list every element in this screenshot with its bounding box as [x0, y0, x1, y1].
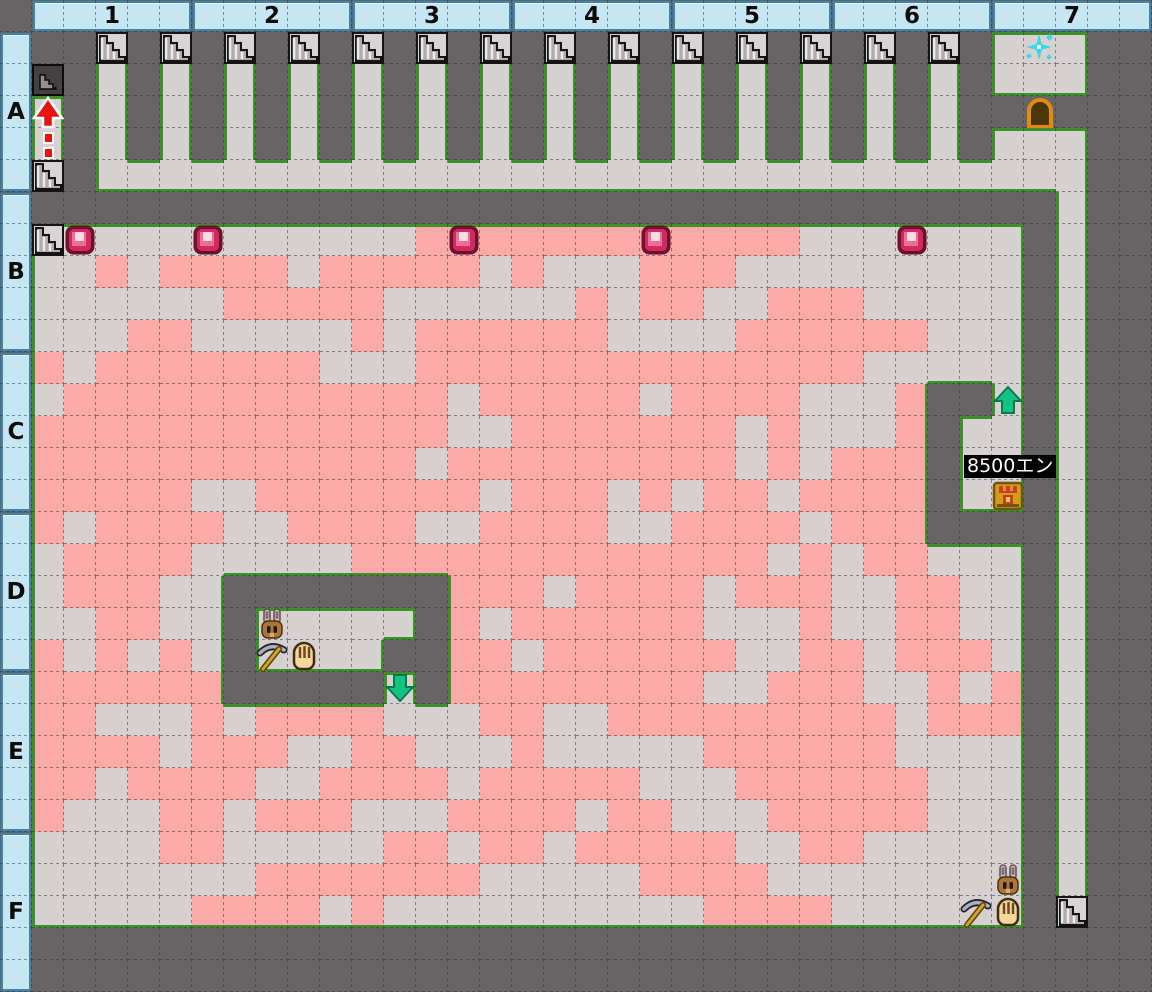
- dug-floor-tile[interactable]: [768, 800, 800, 832]
- dug-floor-tile[interactable]: [672, 416, 704, 448]
- dug-floor-tile[interactable]: [576, 320, 608, 352]
- floor-tile[interactable]: [768, 480, 800, 512]
- floor-tile[interactable]: [1056, 384, 1088, 416]
- floor-tile[interactable]: [1056, 128, 1088, 160]
- floor-tile[interactable]: [416, 288, 448, 320]
- floor-tile[interactable]: [224, 320, 256, 352]
- floor-tile[interactable]: [32, 256, 64, 288]
- floor-tile[interactable]: [704, 608, 736, 640]
- floor-tile[interactable]: [128, 640, 160, 672]
- dug-floor-tile[interactable]: [192, 352, 224, 384]
- floor-tile[interactable]: [992, 128, 1024, 160]
- dug-floor-tile[interactable]: [128, 768, 160, 800]
- dug-floor-tile[interactable]: [704, 864, 736, 896]
- dug-floor-tile[interactable]: [544, 320, 576, 352]
- floor-tile[interactable]: [32, 320, 64, 352]
- dug-floor-tile[interactable]: [704, 480, 736, 512]
- dug-floor-tile[interactable]: [576, 608, 608, 640]
- dug-floor-tile[interactable]: [288, 704, 320, 736]
- dug-floor-tile[interactable]: [576, 640, 608, 672]
- floor-tile[interactable]: [640, 736, 672, 768]
- floor-tile[interactable]: [64, 832, 96, 864]
- dug-floor-tile[interactable]: [288, 480, 320, 512]
- dug-floor-tile[interactable]: [448, 448, 480, 480]
- dug-floor-tile[interactable]: [768, 576, 800, 608]
- dug-floor-tile[interactable]: [128, 544, 160, 576]
- floor-tile[interactable]: [128, 160, 160, 192]
- dug-floor-tile[interactable]: [512, 544, 544, 576]
- dug-floor-tile[interactable]: [512, 384, 544, 416]
- dug-floor-tile[interactable]: [64, 672, 96, 704]
- dug-floor-tile[interactable]: [608, 704, 640, 736]
- dug-floor-tile[interactable]: [384, 832, 416, 864]
- floor-tile[interactable]: [384, 704, 416, 736]
- dug-floor-tile[interactable]: [576, 832, 608, 864]
- floor-tile[interactable]: [32, 288, 64, 320]
- dug-floor-tile[interactable]: [96, 672, 128, 704]
- floor-tile[interactable]: [96, 288, 128, 320]
- floor-tile[interactable]: [960, 864, 992, 896]
- dug-floor-tile[interactable]: [544, 608, 576, 640]
- dug-floor-tile[interactable]: [480, 352, 512, 384]
- dug-floor-tile[interactable]: [608, 800, 640, 832]
- floor-tile[interactable]: [160, 96, 192, 128]
- dug-floor-tile[interactable]: [640, 800, 672, 832]
- dug-floor-tile[interactable]: [96, 608, 128, 640]
- floor-tile[interactable]: [384, 800, 416, 832]
- dug-floor-tile[interactable]: [576, 480, 608, 512]
- floor-tile[interactable]: [160, 64, 192, 96]
- floor-tile[interactable]: [1056, 832, 1088, 864]
- floor-tile[interactable]: [768, 544, 800, 576]
- dug-floor-tile[interactable]: [384, 480, 416, 512]
- floor-tile[interactable]: [928, 736, 960, 768]
- floor-tile[interactable]: [896, 896, 928, 928]
- floor-tile[interactable]: [1024, 64, 1056, 96]
- dug-floor-tile[interactable]: [544, 384, 576, 416]
- floor-tile[interactable]: [416, 512, 448, 544]
- dug-floor-tile[interactable]: [928, 576, 960, 608]
- floor-tile[interactable]: [96, 96, 128, 128]
- dug-floor-tile[interactable]: [480, 544, 512, 576]
- dug-floor-tile[interactable]: [192, 416, 224, 448]
- floor-tile[interactable]: [352, 832, 384, 864]
- dug-floor-tile[interactable]: [768, 512, 800, 544]
- dug-floor-tile[interactable]: [352, 704, 384, 736]
- floor-tile[interactable]: [224, 64, 256, 96]
- dug-floor-tile[interactable]: [480, 512, 512, 544]
- floor-tile[interactable]: [576, 896, 608, 928]
- dug-floor-tile[interactable]: [160, 416, 192, 448]
- floor-tile[interactable]: [608, 896, 640, 928]
- dug-floor-tile[interactable]: [640, 608, 672, 640]
- dug-floor-tile[interactable]: [160, 256, 192, 288]
- floor-tile[interactable]: [512, 288, 544, 320]
- dug-floor-tile[interactable]: [96, 640, 128, 672]
- floor-tile[interactable]: [32, 864, 64, 896]
- floor-tile[interactable]: [736, 608, 768, 640]
- floor-tile[interactable]: [960, 768, 992, 800]
- dug-floor-tile[interactable]: [256, 896, 288, 928]
- floor-tile[interactable]: [224, 160, 256, 192]
- floor-tile[interactable]: [896, 736, 928, 768]
- stairs-icon[interactable]: [736, 32, 768, 64]
- dug-floor-tile[interactable]: [320, 256, 352, 288]
- dug-floor-tile[interactable]: [832, 736, 864, 768]
- dug-floor-tile[interactable]: [736, 512, 768, 544]
- dug-floor-tile[interactable]: [736, 384, 768, 416]
- floor-tile[interactable]: [608, 480, 640, 512]
- dug-floor-tile[interactable]: [608, 544, 640, 576]
- floor-tile[interactable]: [768, 832, 800, 864]
- floor-tile[interactable]: [704, 576, 736, 608]
- floor-tile[interactable]: [928, 128, 960, 160]
- dug-floor-tile[interactable]: [352, 768, 384, 800]
- dug-floor-tile[interactable]: [512, 256, 544, 288]
- dark-stairs-icon[interactable]: [32, 64, 64, 96]
- floor-tile[interactable]: [32, 544, 64, 576]
- floor-tile[interactable]: [576, 736, 608, 768]
- dug-floor-tile[interactable]: [32, 512, 64, 544]
- dug-floor-tile[interactable]: [288, 352, 320, 384]
- floor-tile[interactable]: [960, 416, 992, 448]
- floor-tile[interactable]: [832, 608, 864, 640]
- floor-tile[interactable]: [480, 96, 512, 128]
- floor-tile[interactable]: [32, 608, 64, 640]
- dug-floor-tile[interactable]: [32, 800, 64, 832]
- dug-floor-tile[interactable]: [672, 512, 704, 544]
- dug-floor-tile[interactable]: [192, 768, 224, 800]
- dug-floor-tile[interactable]: [736, 768, 768, 800]
- floor-tile[interactable]: [1056, 224, 1088, 256]
- dug-floor-tile[interactable]: [640, 704, 672, 736]
- dug-floor-tile[interactable]: [384, 512, 416, 544]
- dug-floor-tile[interactable]: [96, 256, 128, 288]
- dug-floor-tile[interactable]: [704, 416, 736, 448]
- floor-tile[interactable]: [384, 608, 416, 640]
- floor-tile[interactable]: [896, 832, 928, 864]
- dug-floor-tile[interactable]: [448, 672, 480, 704]
- floor-tile[interactable]: [224, 864, 256, 896]
- dug-floor-tile[interactable]: [416, 544, 448, 576]
- floor-tile[interactable]: [672, 64, 704, 96]
- floor-tile[interactable]: [608, 256, 640, 288]
- floor-tile[interactable]: [224, 224, 256, 256]
- floor-tile[interactable]: [384, 896, 416, 928]
- floor-tile[interactable]: [480, 288, 512, 320]
- floor-tile[interactable]: [1056, 160, 1088, 192]
- floor-tile[interactable]: [960, 608, 992, 640]
- dug-floor-tile[interactable]: [320, 448, 352, 480]
- floor-tile[interactable]: [960, 736, 992, 768]
- floor-tile[interactable]: [96, 800, 128, 832]
- floor-tile[interactable]: [320, 320, 352, 352]
- dug-floor-tile[interactable]: [672, 672, 704, 704]
- dug-floor-tile[interactable]: [800, 320, 832, 352]
- floor-tile[interactable]: [224, 800, 256, 832]
- floor-tile[interactable]: [928, 160, 960, 192]
- dug-floor-tile[interactable]: [544, 544, 576, 576]
- floor-tile[interactable]: [608, 736, 640, 768]
- floor-tile[interactable]: [416, 64, 448, 96]
- floor-tile[interactable]: [928, 256, 960, 288]
- floor-tile[interactable]: [96, 864, 128, 896]
- dug-floor-tile[interactable]: [128, 672, 160, 704]
- floor-tile[interactable]: [800, 96, 832, 128]
- dug-floor-tile[interactable]: [704, 352, 736, 384]
- floor-tile[interactable]: [320, 736, 352, 768]
- dug-floor-tile[interactable]: [480, 672, 512, 704]
- floor-tile[interactable]: [448, 768, 480, 800]
- floor-tile[interactable]: [832, 384, 864, 416]
- floor-tile[interactable]: [352, 96, 384, 128]
- dug-floor-tile[interactable]: [576, 352, 608, 384]
- floor-tile[interactable]: [96, 768, 128, 800]
- dug-floor-tile[interactable]: [768, 736, 800, 768]
- stairs-icon[interactable]: [480, 32, 512, 64]
- floor-tile[interactable]: [1056, 352, 1088, 384]
- dug-floor-tile[interactable]: [256, 704, 288, 736]
- floor-tile[interactable]: [864, 576, 896, 608]
- dug-floor-tile[interactable]: [224, 384, 256, 416]
- floor-tile[interactable]: [736, 64, 768, 96]
- floor-tile[interactable]: [992, 768, 1024, 800]
- floor-tile[interactable]: [416, 160, 448, 192]
- floor-tile[interactable]: [864, 416, 896, 448]
- dug-floor-tile[interactable]: [448, 864, 480, 896]
- dug-floor-tile[interactable]: [32, 736, 64, 768]
- floor-tile[interactable]: [1056, 768, 1088, 800]
- dug-floor-tile[interactable]: [736, 544, 768, 576]
- floor-tile[interactable]: [896, 672, 928, 704]
- dug-floor-tile[interactable]: [64, 448, 96, 480]
- stairs-icon[interactable]: [928, 32, 960, 64]
- floor-tile[interactable]: [192, 640, 224, 672]
- dug-floor-tile[interactable]: [864, 448, 896, 480]
- dug-floor-tile[interactable]: [800, 480, 832, 512]
- floor-tile[interactable]: [736, 640, 768, 672]
- dug-floor-tile[interactable]: [992, 704, 1024, 736]
- floor-tile[interactable]: [672, 800, 704, 832]
- floor-tile[interactable]: [800, 160, 832, 192]
- dug-floor-tile[interactable]: [160, 512, 192, 544]
- floor-tile[interactable]: [256, 832, 288, 864]
- dug-floor-tile[interactable]: [512, 448, 544, 480]
- floor-tile[interactable]: [64, 256, 96, 288]
- dug-floor-tile[interactable]: [352, 736, 384, 768]
- floor-tile[interactable]: [672, 128, 704, 160]
- dug-floor-tile[interactable]: [448, 640, 480, 672]
- floor-tile[interactable]: [448, 512, 480, 544]
- floor-tile[interactable]: [320, 896, 352, 928]
- stairs-icon[interactable]: [1056, 896, 1088, 928]
- dug-floor-tile[interactable]: [704, 704, 736, 736]
- dug-floor-tile[interactable]: [64, 384, 96, 416]
- floor-tile[interactable]: [896, 704, 928, 736]
- dug-floor-tile[interactable]: [640, 448, 672, 480]
- dug-floor-tile[interactable]: [864, 320, 896, 352]
- dug-floor-tile[interactable]: [896, 320, 928, 352]
- floor-tile[interactable]: [768, 640, 800, 672]
- dug-floor-tile[interactable]: [160, 768, 192, 800]
- floor-tile[interactable]: [736, 416, 768, 448]
- floor-tile[interactable]: [960, 480, 992, 512]
- dug-floor-tile[interactable]: [128, 736, 160, 768]
- floor-tile[interactable]: [160, 576, 192, 608]
- dug-floor-tile[interactable]: [800, 800, 832, 832]
- dug-floor-tile[interactable]: [192, 384, 224, 416]
- dug-floor-tile[interactable]: [800, 672, 832, 704]
- floor-tile[interactable]: [992, 256, 1024, 288]
- dug-floor-tile[interactable]: [800, 576, 832, 608]
- floor-tile[interactable]: [800, 64, 832, 96]
- floor-tile[interactable]: [256, 544, 288, 576]
- floor-tile[interactable]: [864, 256, 896, 288]
- floor-tile[interactable]: [640, 384, 672, 416]
- dug-floor-tile[interactable]: [64, 736, 96, 768]
- gem-icon[interactable]: [896, 224, 928, 256]
- floor-tile[interactable]: [160, 288, 192, 320]
- floor-tile[interactable]: [352, 800, 384, 832]
- floor-tile[interactable]: [544, 256, 576, 288]
- dug-floor-tile[interactable]: [544, 512, 576, 544]
- dug-floor-tile[interactable]: [704, 448, 736, 480]
- dug-floor-tile[interactable]: [896, 512, 928, 544]
- floor-tile[interactable]: [640, 320, 672, 352]
- dug-floor-tile[interactable]: [512, 704, 544, 736]
- floor-tile[interactable]: [96, 128, 128, 160]
- dug-floor-tile[interactable]: [288, 288, 320, 320]
- floor-tile[interactable]: [992, 224, 1024, 256]
- dug-floor-tile[interactable]: [608, 768, 640, 800]
- floor-tile[interactable]: [736, 832, 768, 864]
- stairs-icon[interactable]: [32, 224, 64, 256]
- floor-tile[interactable]: [960, 800, 992, 832]
- floor-tile[interactable]: [992, 320, 1024, 352]
- dug-floor-tile[interactable]: [896, 384, 928, 416]
- dug-floor-tile[interactable]: [736, 224, 768, 256]
- dug-floor-tile[interactable]: [704, 256, 736, 288]
- dug-floor-tile[interactable]: [352, 544, 384, 576]
- floor-tile[interactable]: [448, 704, 480, 736]
- floor-tile[interactable]: [384, 320, 416, 352]
- dug-floor-tile[interactable]: [640, 544, 672, 576]
- dug-floor-tile[interactable]: [384, 864, 416, 896]
- floor-tile[interactable]: [864, 288, 896, 320]
- dug-floor-tile[interactable]: [960, 704, 992, 736]
- floor-tile[interactable]: [832, 256, 864, 288]
- dug-floor-tile[interactable]: [480, 768, 512, 800]
- dug-floor-tile[interactable]: [320, 384, 352, 416]
- dug-floor-tile[interactable]: [672, 576, 704, 608]
- floor-tile[interactable]: [608, 160, 640, 192]
- stairs-icon[interactable]: [288, 32, 320, 64]
- floor-tile[interactable]: [128, 704, 160, 736]
- dug-floor-tile[interactable]: [800, 768, 832, 800]
- floor-tile[interactable]: [704, 800, 736, 832]
- dug-floor-tile[interactable]: [768, 672, 800, 704]
- floor-tile[interactable]: [864, 128, 896, 160]
- floor-tile[interactable]: [1056, 640, 1088, 672]
- floor-tile[interactable]: [864, 224, 896, 256]
- dug-floor-tile[interactable]: [544, 672, 576, 704]
- floor-tile[interactable]: [1056, 672, 1088, 704]
- floor-tile[interactable]: [288, 64, 320, 96]
- dug-floor-tile[interactable]: [640, 256, 672, 288]
- floor-tile[interactable]: [96, 832, 128, 864]
- floor-tile[interactable]: [864, 640, 896, 672]
- dug-floor-tile[interactable]: [320, 480, 352, 512]
- dug-floor-tile[interactable]: [256, 800, 288, 832]
- floor-tile[interactable]: [544, 736, 576, 768]
- floor-tile[interactable]: [160, 608, 192, 640]
- dug-floor-tile[interactable]: [736, 480, 768, 512]
- dug-floor-tile[interactable]: [768, 288, 800, 320]
- dug-floor-tile[interactable]: [384, 544, 416, 576]
- floor-tile[interactable]: [736, 448, 768, 480]
- floor-tile[interactable]: [640, 160, 672, 192]
- floor-tile[interactable]: [864, 896, 896, 928]
- dug-floor-tile[interactable]: [480, 704, 512, 736]
- floor-tile[interactable]: [928, 352, 960, 384]
- dug-floor-tile[interactable]: [160, 384, 192, 416]
- floor-tile[interactable]: [288, 96, 320, 128]
- stairs-icon[interactable]: [864, 32, 896, 64]
- floor-tile[interactable]: [192, 864, 224, 896]
- floor-tile[interactable]: [544, 864, 576, 896]
- dug-floor-tile[interactable]: [544, 480, 576, 512]
- dug-floor-tile[interactable]: [512, 416, 544, 448]
- dug-floor-tile[interactable]: [416, 320, 448, 352]
- dug-floor-tile[interactable]: [416, 256, 448, 288]
- floor-tile[interactable]: [416, 96, 448, 128]
- dug-floor-tile[interactable]: [800, 704, 832, 736]
- floor-tile[interactable]: [608, 64, 640, 96]
- dug-floor-tile[interactable]: [800, 608, 832, 640]
- dug-floor-tile[interactable]: [352, 448, 384, 480]
- floor-tile[interactable]: [448, 384, 480, 416]
- dug-floor-tile[interactable]: [608, 352, 640, 384]
- dug-floor-tile[interactable]: [608, 224, 640, 256]
- dug-floor-tile[interactable]: [96, 384, 128, 416]
- floor-tile[interactable]: [160, 704, 192, 736]
- floor-tile[interactable]: [896, 352, 928, 384]
- dug-floor-tile[interactable]: [768, 448, 800, 480]
- floor-tile[interactable]: [64, 608, 96, 640]
- dug-floor-tile[interactable]: [512, 768, 544, 800]
- floor-tile[interactable]: [960, 320, 992, 352]
- dug-floor-tile[interactable]: [768, 320, 800, 352]
- dug-floor-tile[interactable]: [160, 800, 192, 832]
- floor-tile[interactable]: [672, 768, 704, 800]
- dug-floor-tile[interactable]: [640, 640, 672, 672]
- floor-tile[interactable]: [448, 416, 480, 448]
- floor-tile[interactable]: [736, 128, 768, 160]
- floor-tile[interactable]: [992, 576, 1024, 608]
- floor-tile[interactable]: [544, 96, 576, 128]
- dug-floor-tile[interactable]: [288, 896, 320, 928]
- dug-floor-tile[interactable]: [96, 544, 128, 576]
- dug-floor-tile[interactable]: [736, 320, 768, 352]
- dug-floor-tile[interactable]: [672, 544, 704, 576]
- floor-tile[interactable]: [288, 320, 320, 352]
- dug-floor-tile[interactable]: [512, 352, 544, 384]
- floor-tile[interactable]: [640, 768, 672, 800]
- dug-floor-tile[interactable]: [224, 256, 256, 288]
- floor-tile[interactable]: [928, 64, 960, 96]
- dug-floor-tile[interactable]: [384, 448, 416, 480]
- floor-tile[interactable]: [864, 608, 896, 640]
